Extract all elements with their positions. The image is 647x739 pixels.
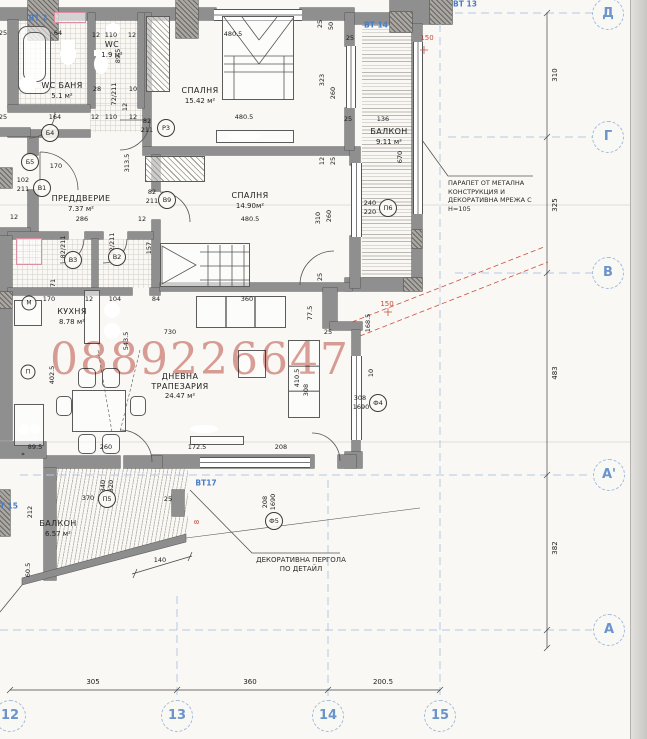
dim-label: * — [21, 451, 24, 459]
dim-label: 308 — [302, 384, 310, 396]
room-label: СПАЛНЯ15.42 м² — [181, 86, 218, 105]
parapet-annotation: ПАРАПЕТ ОТ МЕТАЛНАКОНСТРУКЦИЯ ИДЕКОРАТИВ… — [448, 179, 540, 213]
room-name: WC — [101, 40, 122, 50]
annotation-line: ПО ДЕТАЙЛ — [246, 565, 356, 574]
room-area: 15.42 м² — [181, 96, 218, 104]
dim-label: 211 — [17, 185, 29, 193]
red-marker: 150 — [420, 34, 433, 42]
dim-label: 12 — [121, 103, 129, 111]
grid-bubble: Г — [592, 121, 624, 153]
dim-label: 12 — [129, 113, 137, 121]
dim-label: 208 — [261, 496, 269, 508]
red-marker: 8 — [193, 520, 201, 524]
dim-label: 84 — [152, 295, 160, 303]
tag-opening: П6 — [379, 199, 397, 217]
dim-label: 60.5 — [24, 563, 32, 577]
dim-label: 77.5 — [306, 306, 314, 320]
dim-label: 730 — [164, 328, 176, 336]
dim-label: 480.5 — [241, 215, 260, 223]
dim-label: 25 — [324, 328, 332, 336]
dim-label: 402.5 — [48, 366, 56, 385]
red-marker: 150 — [380, 300, 393, 308]
dim-label: 110 — [105, 113, 117, 121]
floor-plan-page: 0889226647 ПАРАПЕТ ОТ МЕТАЛНАКОНСТРУКЦИЯ… — [0, 0, 647, 739]
room-name: БАЛКОН — [370, 127, 407, 137]
scan-edge-shadow — [630, 0, 647, 739]
dim-label: 28 — [93, 85, 101, 93]
dim-label: 82 — [148, 188, 156, 196]
dim-label: 543.5 — [122, 332, 130, 351]
dim-label: 25 — [0, 29, 7, 37]
grid-bubble: 14 — [312, 700, 344, 732]
dim-label: 12 — [91, 113, 99, 121]
dim-label: 157 — [145, 242, 153, 254]
room-area: 8.78 м² — [57, 317, 87, 325]
tag-opening: В2 — [108, 248, 126, 266]
grid-bubble: 13 — [161, 700, 193, 732]
grid-bubble: 15 — [424, 700, 456, 732]
dim-label: 12 — [85, 295, 93, 303]
dim-label: 25 — [344, 115, 352, 123]
dim-label: 50 — [327, 22, 335, 30]
dim-label: 25 — [329, 157, 337, 165]
dim-label: 286 — [76, 215, 88, 223]
annotation-line: ДЕКОРАТИВНА ПЕРГОЛА — [246, 556, 356, 565]
room-name: ПРЕДДВЕРИЕ — [52, 194, 111, 204]
dim-label: 1690 — [269, 494, 277, 511]
vt-marker: ВТ 13 — [453, 0, 477, 9]
grid-bubble: В — [592, 257, 624, 289]
dim-label: 25 — [164, 495, 172, 503]
dim-label: 410.5 — [293, 369, 301, 388]
dim-label: 220 — [364, 208, 376, 216]
room-label: СПАЛНЯ14.90м² — [231, 191, 268, 210]
room-name: ТРАПЕЗАРИЯ — [151, 382, 208, 392]
tag-opening: В3 — [64, 251, 82, 269]
dim-label: 102 — [17, 176, 29, 184]
room-label: БАЛКОН6.57 м² — [39, 519, 76, 538]
annotation-line: КОНСТРУКЦИЯ И — [448, 188, 540, 197]
dim-label: 71 — [49, 279, 57, 287]
room-name: ДНЕВНА — [151, 372, 208, 382]
dim-label: 89.5 — [28, 443, 42, 451]
room-area: 24.47 м² — [151, 392, 208, 400]
vt-marker: ВТ 2 — [29, 14, 48, 23]
dim-label: 164 — [49, 113, 61, 121]
room-label: БАЛКОН9.11 м² — [370, 127, 407, 146]
dim-label: 12 — [92, 31, 100, 39]
dim-label: 480.5 — [224, 30, 243, 38]
room-name: WC БАНЯ — [41, 81, 82, 91]
dim-label: 670 — [396, 151, 404, 163]
vt-marker: ВТ17 — [195, 479, 216, 488]
dim-label: 140 — [154, 556, 166, 564]
labels-layer: ПАРАПЕТ ОТ МЕТАЛНАКОНСТРУКЦИЯ ИДЕКОРАТИВ… — [0, 0, 647, 739]
room-area: 14.90м² — [231, 201, 268, 209]
tag-appliance: М — [22, 296, 37, 311]
annotation-line: ПАРАПЕТ ОТ МЕТАЛНА — [448, 179, 540, 188]
grid-dim-label: 483 — [551, 366, 559, 379]
dim-label: 12 — [138, 215, 146, 223]
dim-label: 110 — [105, 31, 117, 39]
dim-label: 12 — [318, 157, 326, 165]
room-label: ПРЕДДВЕРИЕ7.37 м² — [52, 194, 111, 213]
dim-label: 370 — [82, 494, 94, 502]
grid-bubble: 12 — [0, 700, 26, 732]
dim-label: 25 — [316, 273, 324, 281]
grid-dim-label: 305 — [86, 678, 99, 686]
room-name: КУХНЯ — [57, 307, 87, 317]
annotation-line: Н=105 — [448, 205, 540, 214]
room-label: КУХНЯ8.78 м² — [57, 307, 87, 326]
grid-dim-label: 360 — [243, 678, 256, 686]
dim-label: 480.5 — [235, 113, 254, 121]
room-area: 1.9 м² — [101, 50, 122, 58]
dim-label: 170 — [43, 295, 55, 303]
dim-label: 360 — [241, 295, 253, 303]
dim-label: 240 — [364, 199, 376, 207]
dim-label: 12 — [128, 31, 136, 39]
vt-marker: ВТ 14 — [364, 21, 388, 30]
dim-label: 212 — [26, 506, 34, 518]
tag-opening: В1 — [33, 179, 51, 197]
dim-label: 136 — [377, 115, 389, 123]
grid-dim-label: 200.5 — [373, 678, 393, 686]
tag-appliance: П — [21, 365, 36, 380]
dim-label: 170 — [50, 162, 62, 170]
dim-label: 72/211 — [110, 83, 118, 106]
dim-label: 10 — [367, 369, 375, 377]
room-name: БАЛКОН — [39, 519, 76, 529]
room-area: 7.37 м² — [52, 204, 111, 212]
dim-label: 260 — [329, 87, 337, 99]
tag-opening: Б5 — [21, 153, 39, 171]
dim-label: 25 — [0, 113, 7, 121]
room-name: СПАЛНЯ — [231, 191, 268, 201]
tag-opening: Ф5 — [265, 512, 283, 530]
tag-opening: Б4 — [41, 124, 59, 142]
dim-label: 313.5 — [123, 154, 131, 173]
grid-bubble: Д — [592, 0, 624, 30]
grid-dim-label: 382 — [551, 541, 559, 554]
dim-label: 208 — [275, 443, 287, 451]
room-area: 9.11 м² — [370, 137, 407, 145]
dim-label: 260 — [100, 443, 112, 451]
pergola-annotation: ДЕКОРАТИВНА ПЕРГОЛАПО ДЕТАЙЛ — [246, 556, 356, 573]
grid-dim-label: 325 — [551, 198, 559, 211]
grid-bubble: А — [593, 614, 625, 646]
grid-dim-label: 310 — [551, 68, 559, 81]
room-area: 6.57 м² — [39, 529, 76, 537]
dim-label: 25 — [316, 20, 324, 28]
room-area: 5.1 м² — [41, 91, 82, 99]
dim-label: 211 — [146, 197, 158, 205]
dim-label: 308 — [354, 394, 366, 402]
dim-label: 168.5 — [364, 314, 372, 333]
dim-label: 104 — [109, 295, 121, 303]
room-label: WC БАНЯ5.1 м² — [41, 81, 82, 100]
room-label: WC1.9 м² — [101, 40, 122, 59]
vt-marker: ВТ 15 — [0, 502, 18, 511]
room-label: ДНЕВНАТРАПЕЗАРИЯ24.47 м² — [151, 372, 208, 400]
dim-label: 64 — [54, 29, 62, 37]
annotation-line: ДЕКОРАТИВНА МРЕЖА С — [448, 196, 540, 205]
dim-label: 25 — [346, 34, 354, 42]
room-name: СПАЛНЯ — [181, 86, 218, 96]
tag-opening: Ф4 — [369, 394, 387, 412]
tag-opening: В9 — [158, 191, 176, 209]
dim-label: 260 — [325, 210, 333, 222]
dim-label: 211 — [141, 126, 153, 134]
tag-opening: П5 — [98, 490, 116, 508]
dim-label: 12 — [10, 213, 18, 221]
dim-label: 172.5 — [188, 443, 207, 451]
tag-opening: Р3 — [157, 119, 175, 137]
grid-bubble: А' — [593, 459, 625, 491]
dim-label: 1690 — [353, 403, 370, 411]
dim-label: 82 — [143, 117, 151, 125]
dim-label: 310 — [314, 212, 322, 224]
dim-label: 323 — [318, 74, 326, 86]
dim-label: 10 — [129, 85, 137, 93]
